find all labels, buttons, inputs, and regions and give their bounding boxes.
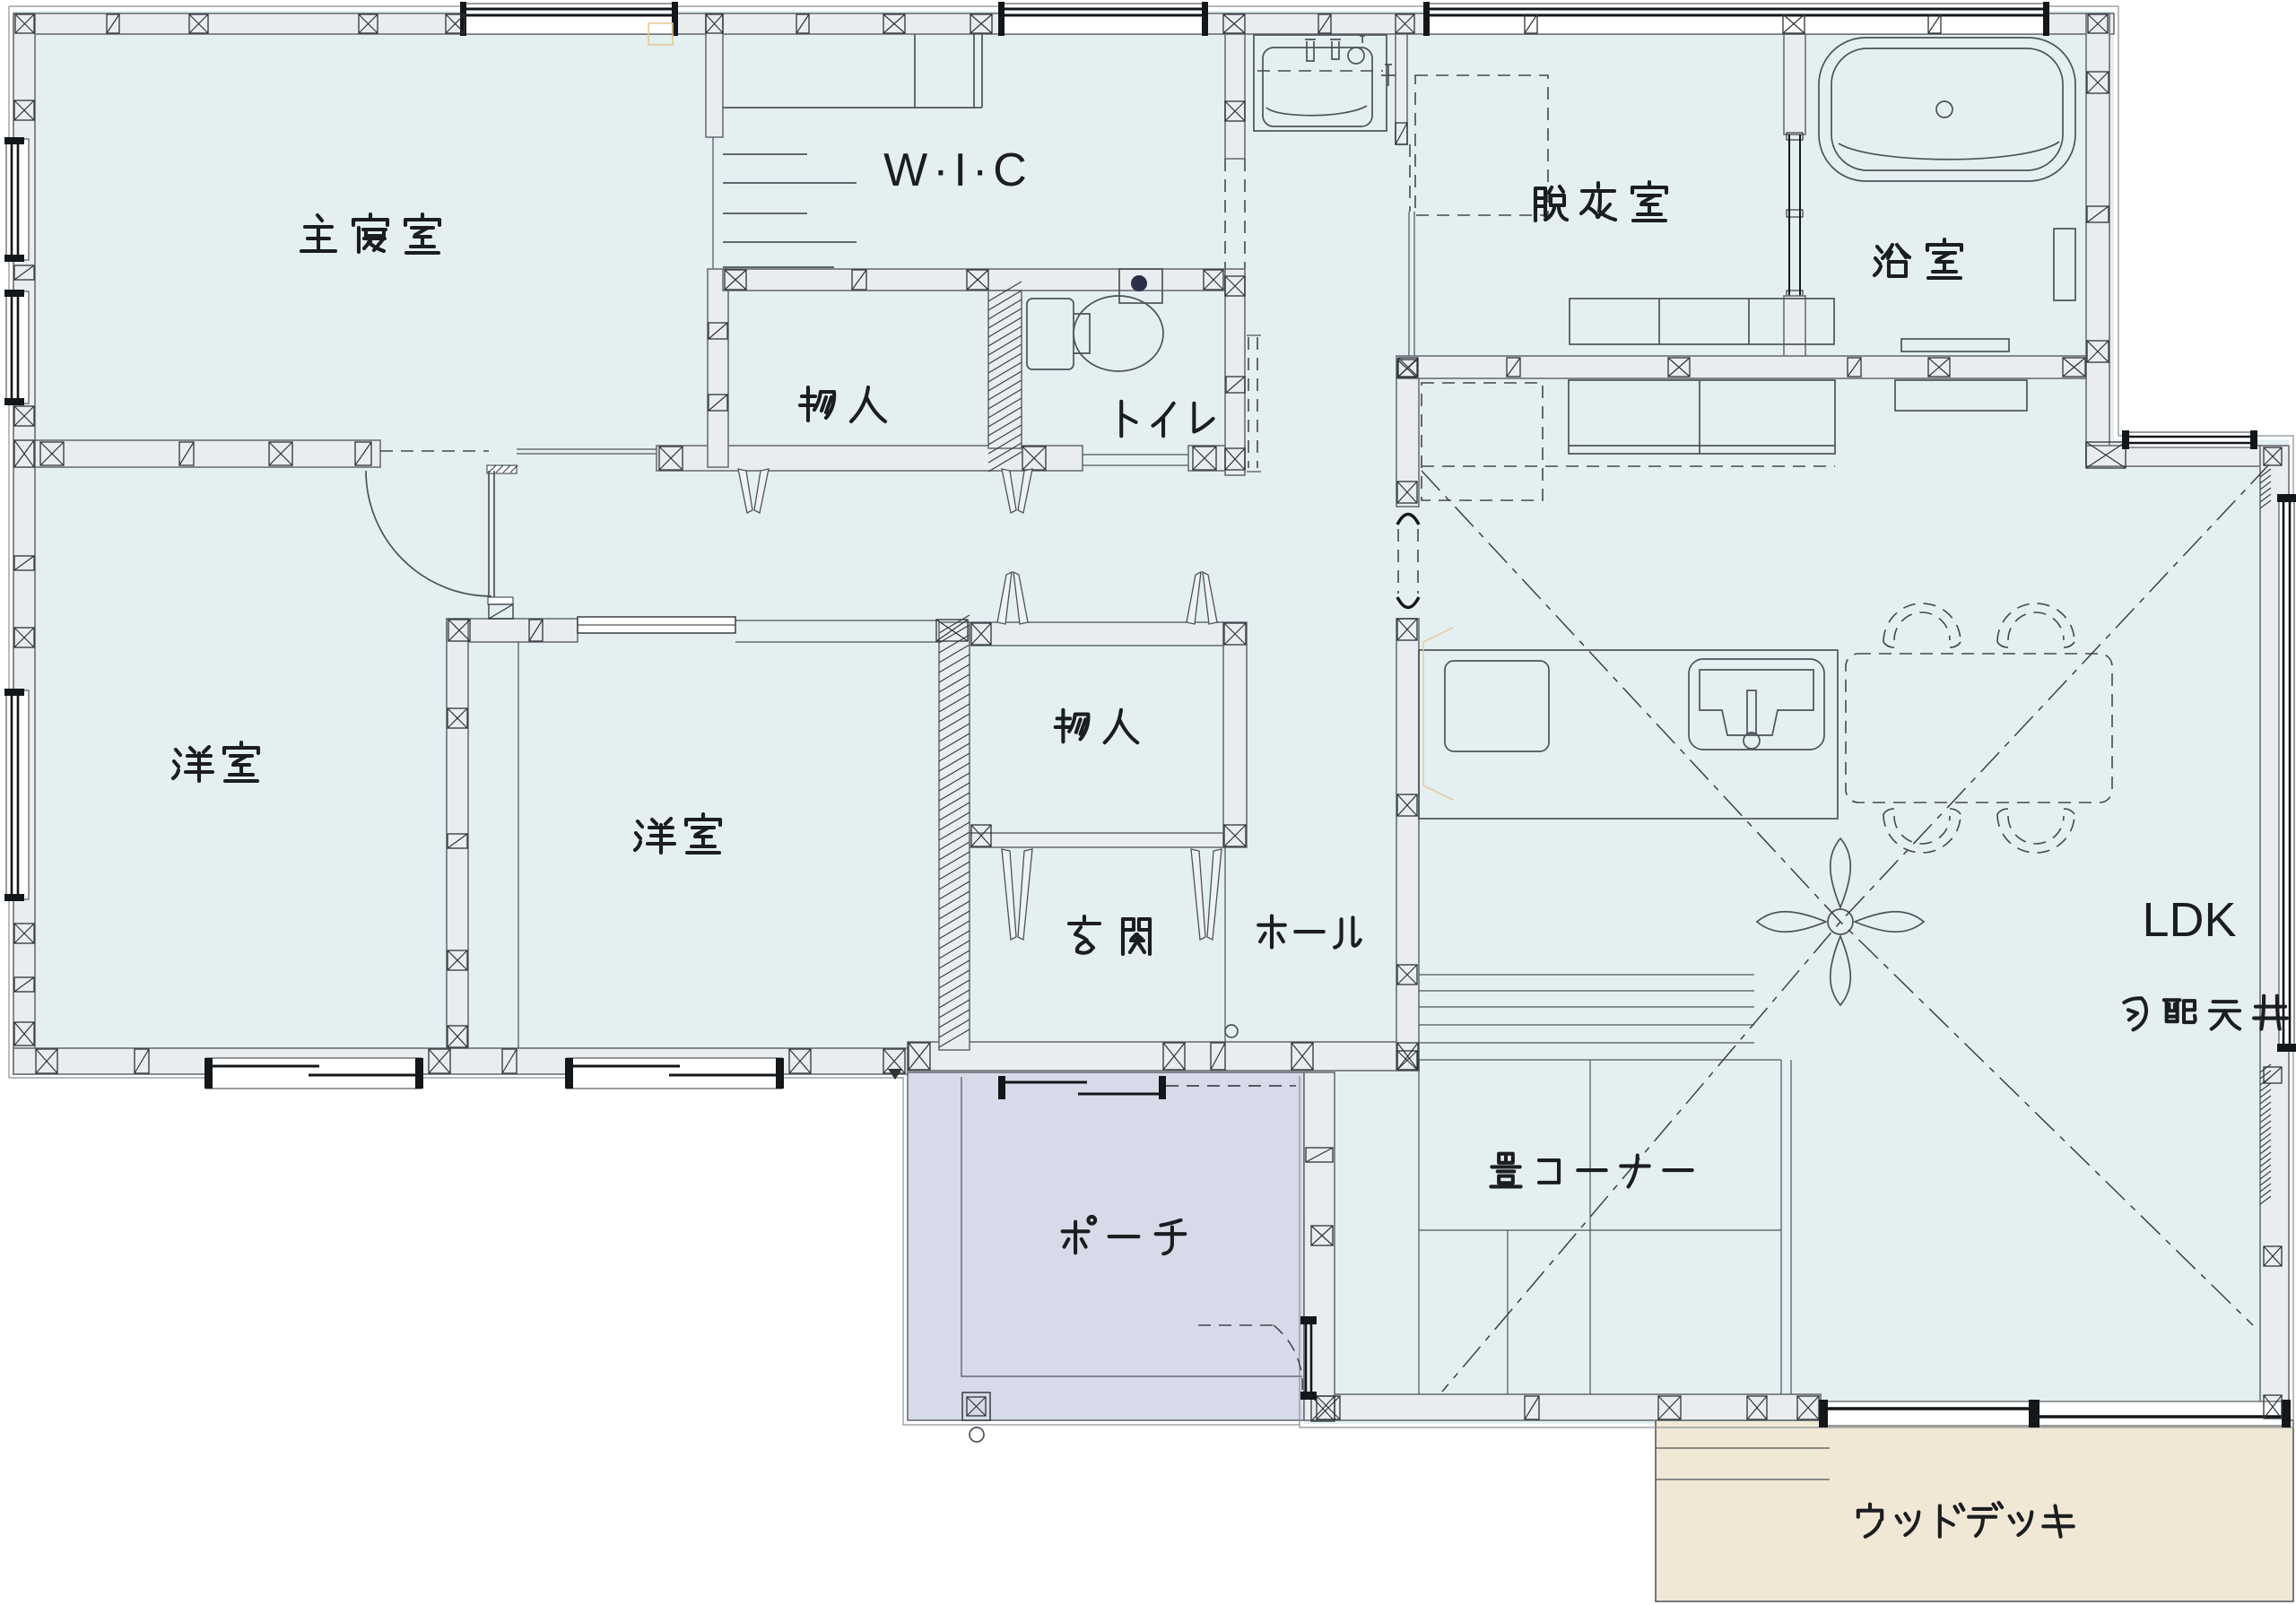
svg-text:LDK: LDK	[2142, 893, 2236, 947]
svg-text:W·I·C: W·I·C	[883, 144, 1032, 196]
